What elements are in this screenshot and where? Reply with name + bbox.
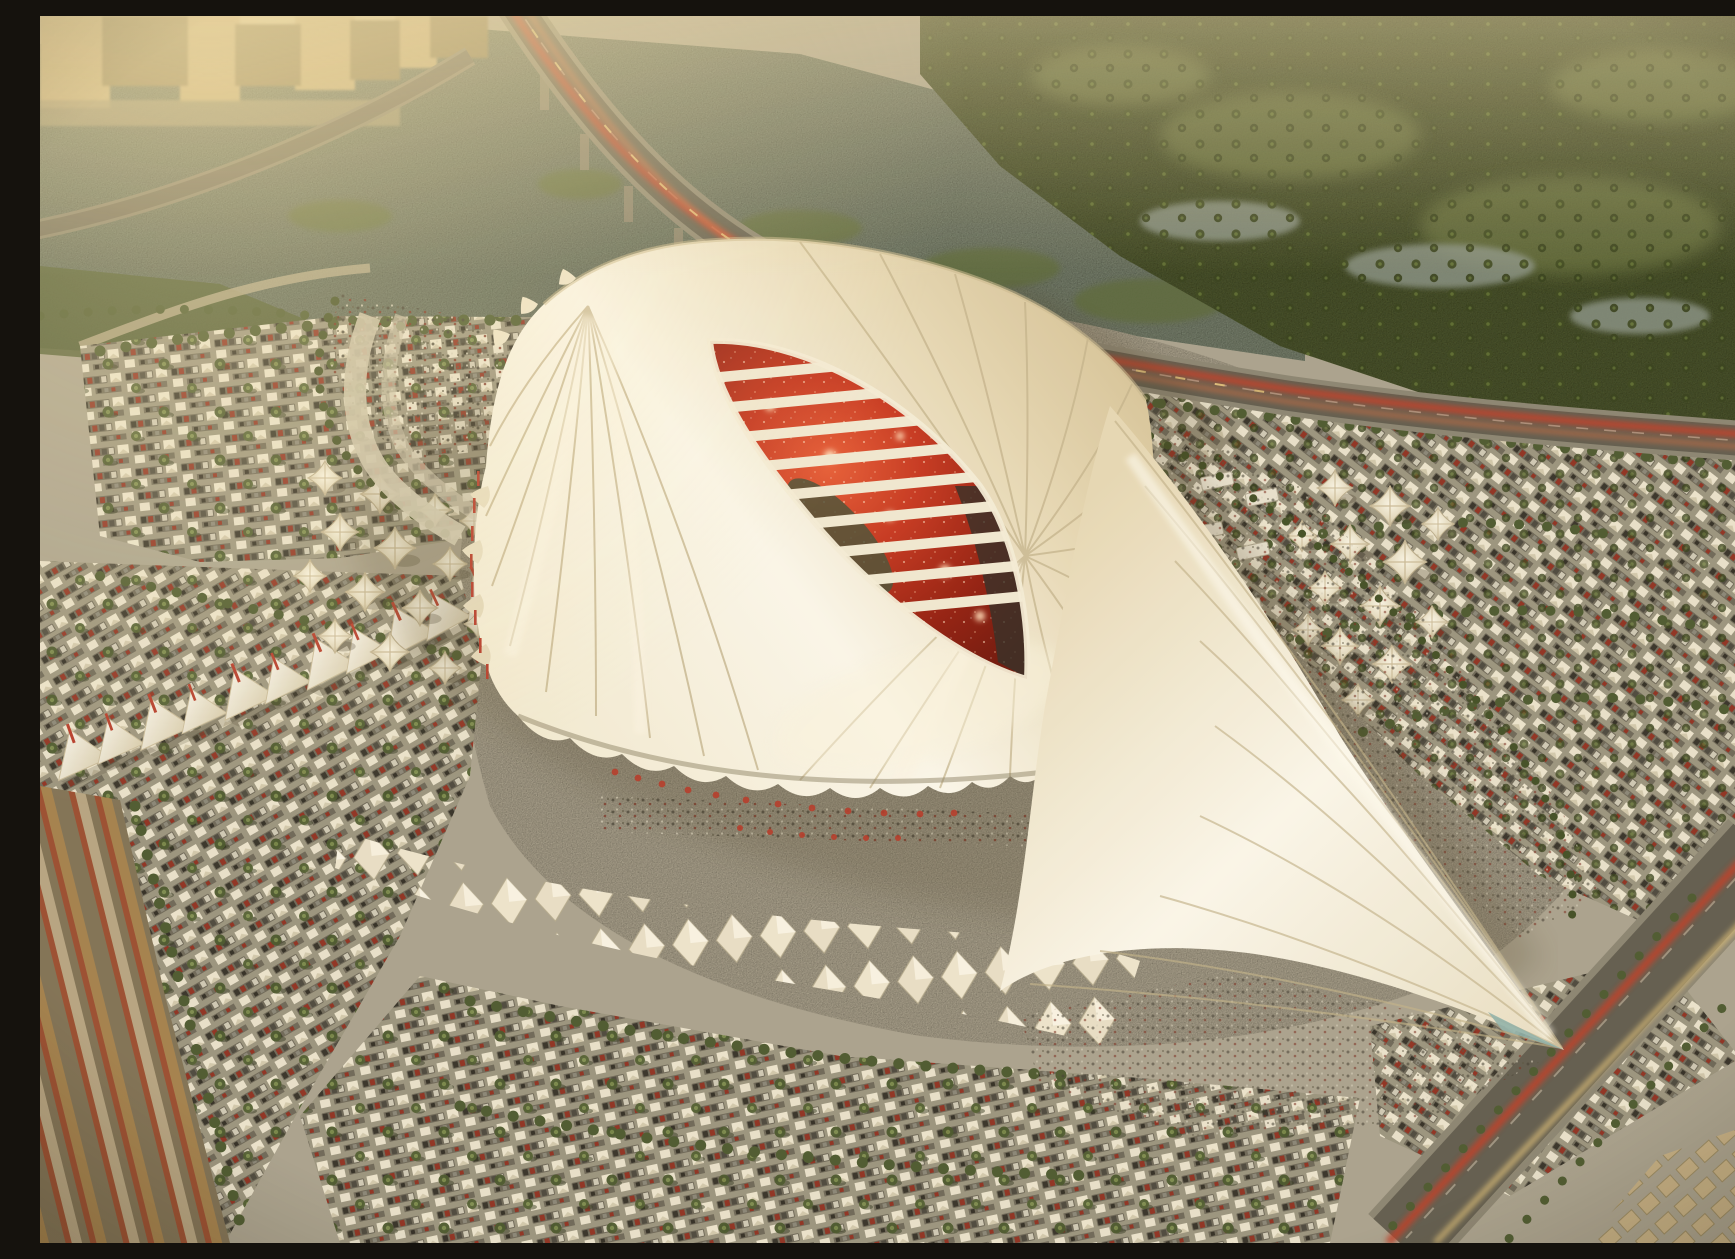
scene-canvas	[40, 16, 1735, 1243]
aerial-stadium-rendering: Aerial dusk rendering of a seashell-shap…	[40, 16, 1735, 1243]
color-grade	[40, 16, 1735, 1243]
